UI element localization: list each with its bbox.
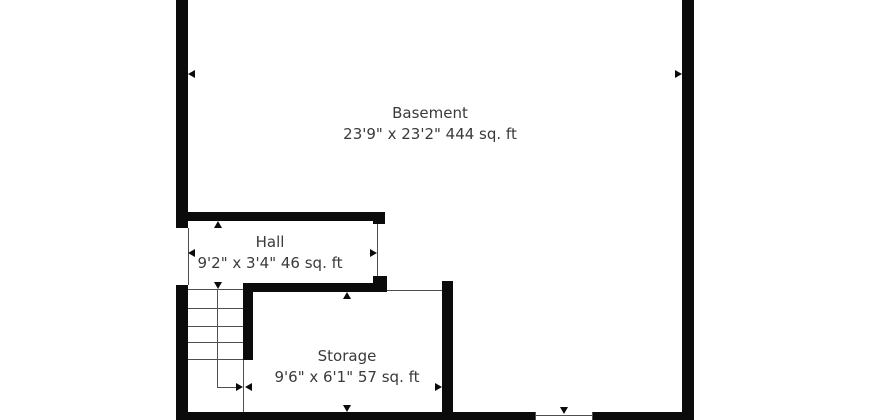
hall-bottom-wall <box>243 283 387 292</box>
storage-doorway-line <box>387 290 442 291</box>
exterior-wall-right <box>682 0 694 420</box>
stair-tread <box>188 326 243 327</box>
room-dimensions: 23'9" x 23'2" 444 sq. ft <box>343 124 517 145</box>
storage-width-arrow-left-icon <box>245 383 252 391</box>
bottom-door-threshold-line <box>535 415 593 416</box>
exterior-wall-left-upper <box>176 0 188 228</box>
basement-floor-plan: Basement 23'9" x 23'2" 444 sq. ft Hall 9… <box>0 0 870 420</box>
stair-tread <box>188 359 243 360</box>
hall-height-arrow-bottom-icon <box>214 282 222 289</box>
stair-tread <box>188 308 243 309</box>
basement-width-arrow-right-icon <box>675 70 682 78</box>
basement-width-arrow-left-icon <box>188 70 195 78</box>
hall-height-arrow-top-icon <box>214 221 222 228</box>
stair-direction-arrow-icon <box>236 383 243 391</box>
hall-top-wall <box>188 212 385 221</box>
storage-width-arrow-right-icon <box>435 383 442 391</box>
hall-width-arrow-right-icon <box>370 249 377 257</box>
room-dimensions: 9'2" x 3'4" 46 sq. ft <box>197 253 342 274</box>
hall-width-arrow-left-icon <box>188 249 195 257</box>
room-name: Basement <box>343 103 517 124</box>
room-label-hall: Hall 9'2" x 3'4" 46 sq. ft <box>197 232 342 274</box>
stair-direction-line-vertical <box>217 289 218 387</box>
exterior-wall-left-lower <box>176 285 188 420</box>
room-name: Storage <box>274 346 419 367</box>
stair-direction-line-horizontal <box>217 387 237 388</box>
room-label-storage: Storage 9'6" x 6'1" 57 sq. ft <box>274 346 419 388</box>
stair-tread <box>188 342 243 343</box>
stair-tread <box>188 289 243 290</box>
stairs-right-wall <box>243 292 253 360</box>
bottom-door-jamb-right <box>592 412 593 420</box>
hall-top-wall-end-cap <box>373 212 385 224</box>
room-name: Hall <box>197 232 342 253</box>
storage-height-arrow-bottom-icon <box>343 405 351 412</box>
storage-height-arrow-top-icon <box>343 292 351 299</box>
exterior-wall-bottom <box>176 412 694 420</box>
storage-left-boundary-line <box>243 360 244 412</box>
bottom-door-jamb-left <box>535 412 536 420</box>
hall-bottom-wall-end-cap <box>373 276 387 292</box>
storage-right-wall <box>442 281 453 415</box>
room-dimensions: 9'6" x 6'1" 57 sq. ft <box>274 367 419 388</box>
room-label-basement: Basement 23'9" x 23'2" 444 sq. ft <box>343 103 517 145</box>
bottom-door-marker-icon <box>560 407 568 414</box>
hall-right-passage-line <box>377 224 378 276</box>
